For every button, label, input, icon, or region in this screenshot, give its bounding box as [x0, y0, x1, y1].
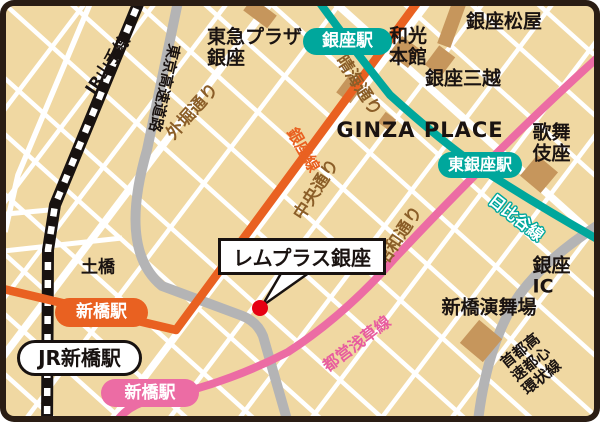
ginza-access-map: JR山手線 東京高速道路 外堀通り 晴海通り 銀座線 中央通り 日比谷線 昭和通…	[6, 6, 594, 416]
kabukiza-building	[520, 155, 558, 193]
shimbashi-metro-station-badge[interactable]: 新橋駅	[55, 298, 148, 327]
hotel-callout[interactable]: レムプラス銀座	[218, 238, 386, 275]
higashi-ginza-station-badge[interactable]: 東銀座駅	[438, 152, 522, 178]
shimbashi-asakusa-station-badge[interactable]: 新橋駅	[101, 379, 199, 407]
hotel-location-dot[interactable]	[252, 300, 268, 316]
ginza-station-badge[interactable]: 銀座駅	[303, 28, 392, 55]
map-frame: JR山手線 東京高速道路 外堀通り 晴海通り 銀座線 中央通り 日比谷線 昭和通…	[0, 0, 600, 422]
jr-shimbashi-station-badge[interactable]: JR新橋駅	[17, 340, 142, 376]
